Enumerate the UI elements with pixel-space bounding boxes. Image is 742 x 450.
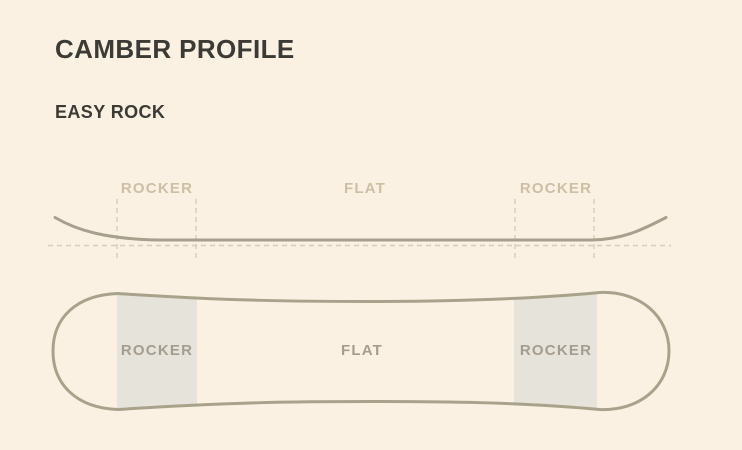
side-zone-label-rocker-right: ROCKER [520,180,592,197]
side-zone-label-rocker-left: ROCKER [121,180,193,197]
camber-profile-page: CAMBER PROFILE EASY ROCK [0,0,742,450]
side-profile-curve [55,218,666,241]
side-zone-label-flat: FLAT [344,180,386,197]
camber-diagram-canvas [0,0,742,450]
side-profile-view [48,199,671,258]
board-zone-label-rocker-right: ROCKER [520,342,592,359]
board-zone-label-flat: FLAT [341,342,383,359]
board-zone-label-rocker-left: ROCKER [121,342,193,359]
